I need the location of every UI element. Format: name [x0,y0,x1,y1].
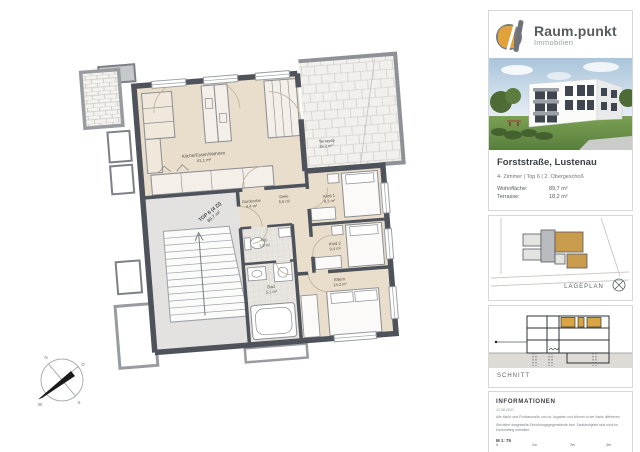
wardrobe-kind2 [315,256,342,270]
label-diele-area: 5,6 m² [279,198,291,204]
scalebar-ticks: 0 1m 2m 3m [496,443,614,448]
neighbour-window [107,131,131,163]
terrace-area-label: Terrasse: [497,194,549,200]
listing-title: Forststraße, Lustenau [497,157,624,168]
information-card: INFORMATIONEN 12.08.2021 Alle Maße sind … [488,391,633,452]
scale-tick: 3m [606,443,611,447]
floorplan-sheet: Küche/Essen/Wohnen 41,1 m² Terrasse 18,2… [0,0,640,452]
brand-logo-icon [495,18,529,54]
scale-tick: 1m [532,443,537,447]
information-heading: INFORMATIONEN [496,398,625,405]
pillow-kind1 [345,173,374,184]
terrace-floor [298,54,402,170]
scale-tick: 0 [496,443,498,447]
nightstand-kind2 [331,225,343,235]
wc-cistern [244,238,251,250]
listing-info: Forststraße, Lustenau 4- Zimmer | Top 6 … [489,150,632,210]
desk-kind1 [311,207,336,221]
side-panel: Raum.punkt Immobilien [488,10,633,452]
neighbour-window [116,260,142,294]
terrace-area-value: 18,2 m² [549,194,568,200]
svg-text:O: O [81,362,85,367]
label-wc-name: WC [261,237,268,243]
wardrobe-eltern [301,295,320,338]
disclaimer-note-1: Alle Maße sind Rohbaumaße und ca. Angabe… [496,415,625,420]
siteplan-card: LAGEPLAN [488,215,633,301]
neighbour-window [110,165,134,195]
svg-text:W: W [38,402,43,407]
pillow-eltern [331,292,354,304]
building-photo [489,58,632,150]
svg-text:N: N [44,355,47,360]
label-garderobe-area: 4,4 m² [246,203,258,209]
washbasin [247,267,266,281]
wc-basin [278,227,291,237]
compass-icon: N O S W [38,355,85,407]
floorplan-drawing: Küche/Essen/Wohnen 41,1 m² Terrasse 18,2… [0,0,480,452]
section-label: SCHNITT [497,373,530,379]
disclaimer-note-2: Strichliert dargestellte Einrichtungsgeg… [496,423,625,433]
brand-header: Raum.punkt Immobilien [489,11,632,58]
section-card: SCHNITT [488,305,633,388]
scale-tick: 2m [570,443,575,447]
listing-card: Raum.punkt Immobilien [488,10,633,211]
north-arrow-icon [38,371,75,400]
sofa [141,91,175,139]
neighbour-balcony-brick [81,69,123,128]
brand-name: Raum.punkt [534,24,617,38]
label-kind1-area: 9,3 m² [324,198,336,204]
pillow-kind2 [350,225,379,236]
label-kind2-area: 9,4 m² [329,246,341,252]
pillow-eltern [355,290,378,302]
plan-rotated-group: Küche/Essen/Wohnen 41,1 m² Terrasse 18,2… [80,44,418,374]
plan-date: 12.08.2021 [496,408,625,412]
svg-text:S: S [77,400,80,405]
living-area-label: Wohnfläche: [497,186,549,192]
brand-subtitle: Immobilien [534,39,617,47]
nightstand-kind1 [327,174,339,184]
living-area-value: 89,7 m² [549,186,568,192]
listing-subtitle: 4- Zimmer | Top 6 | 2. Obergeschoß [497,174,624,180]
siteplan-label: LAGEPLAN [564,284,604,290]
label-bad-area: 5,1 m² [266,289,278,295]
sofa-chaise [145,138,163,173]
